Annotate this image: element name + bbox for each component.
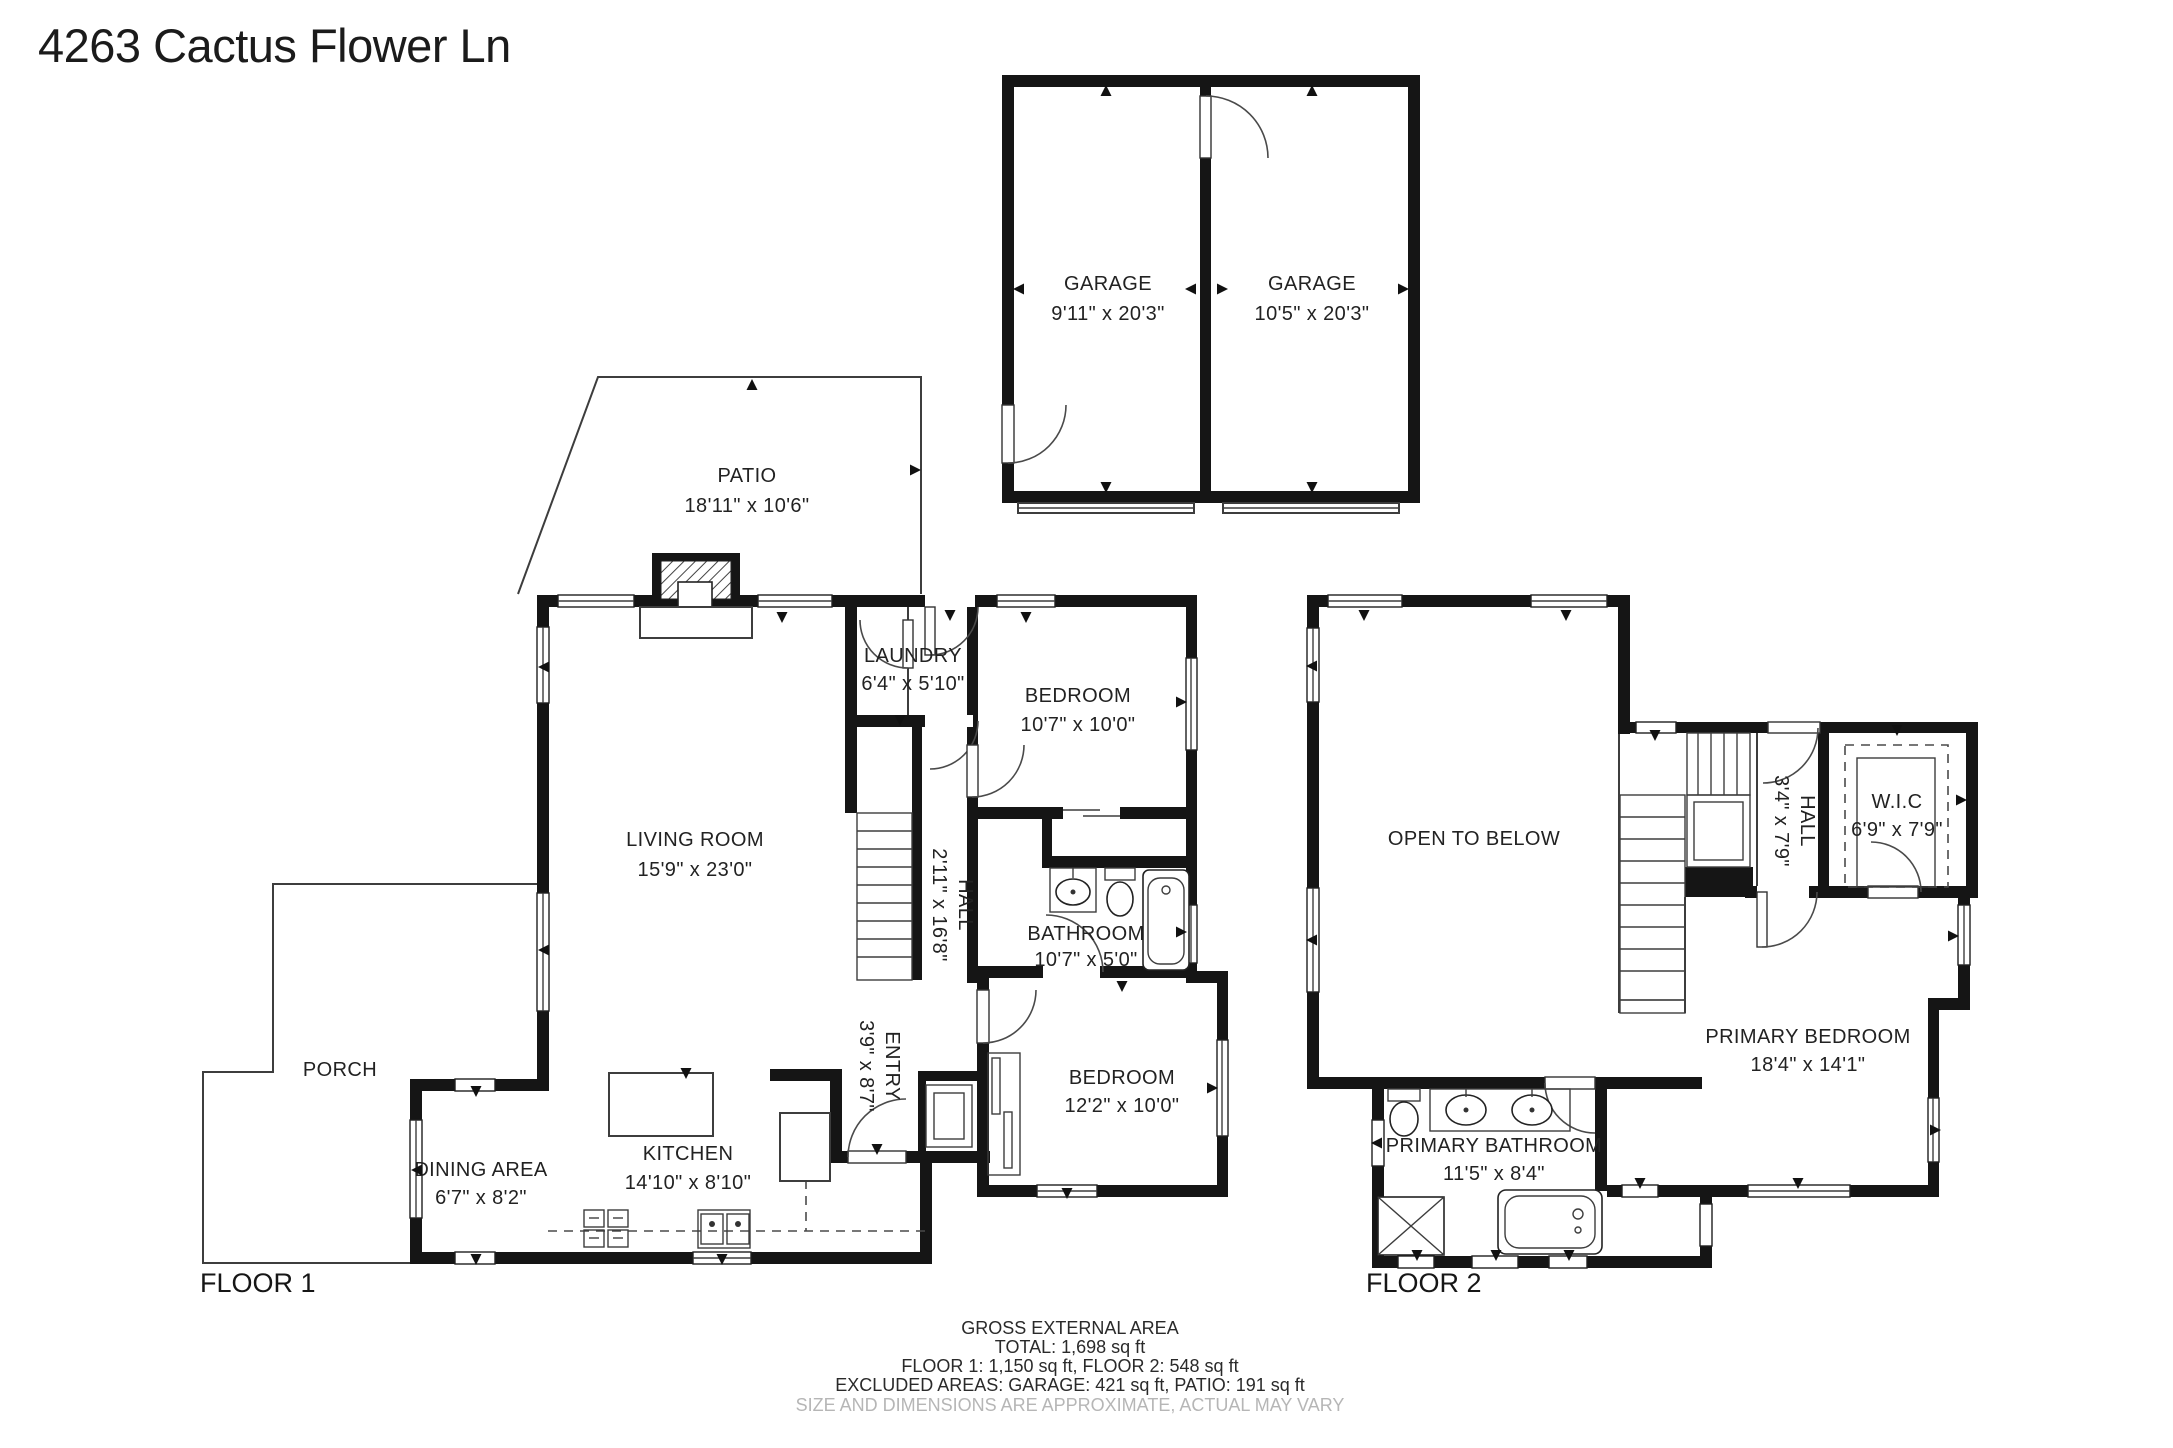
stove <box>584 1210 628 1247</box>
wall-shape <box>1618 595 1630 734</box>
kitchen-dims: 14'10" x 8'10" <box>625 1172 751 1194</box>
primary-bedroom-dims: 18'4" x 14'1" <box>1751 1054 1866 1076</box>
thin1-shape <box>727 1214 749 1244</box>
circle-shape <box>1530 1108 1535 1113</box>
open-to-below-label: OPEN TO BELOW <box>1388 828 1560 850</box>
dash-shape <box>1845 745 1948 887</box>
arc-shape <box>972 745 1024 797</box>
garage-left-dims: 9'11" x 20'3" <box>1051 303 1164 325</box>
circle-shape <box>1464 1108 1469 1113</box>
living-room-label: LIVING ROOM <box>626 829 764 851</box>
entry-label: ENTRY <box>881 1031 903 1100</box>
use-shape <box>1217 284 1228 295</box>
thin-shape <box>640 607 752 638</box>
page-title: 4263 Cactus Flower Ln <box>38 19 511 72</box>
footer-line1: GROSS EXTERNAL AREA <box>961 1318 1178 1338</box>
gap-shape <box>925 595 975 607</box>
footer-disclaimer: SIZE AND DIMENSIONS ARE APPROXIMATE, ACT… <box>796 1395 1345 1415</box>
wall-shape <box>1595 1077 1607 1191</box>
wall-shape <box>1818 722 1829 898</box>
laundry-label: LAUNDRY <box>864 645 962 667</box>
thin1-shape <box>698 1210 750 1248</box>
wall-shape <box>537 595 1197 607</box>
wall-shape <box>830 1075 842 1163</box>
leaf-shape <box>967 745 978 797</box>
arc-shape <box>1762 892 1817 947</box>
circle-shape <box>735 1221 741 1227</box>
primary-bedroom-label: PRIMARY BEDROOM <box>1705 1026 1910 1048</box>
use-shape <box>747 379 758 390</box>
use-shape <box>777 612 788 623</box>
wall-shape <box>1408 75 1420 503</box>
bathroom1-label: BATHROOM <box>1027 923 1144 945</box>
use-shape <box>1561 610 1572 621</box>
leaf-shape <box>1868 886 1918 898</box>
win-shape <box>1700 1204 1712 1246</box>
thin1-shape <box>1004 1112 1012 1168</box>
use-shape <box>1185 284 1196 295</box>
bedroom-bottom-label: BEDROOM <box>1069 1067 1175 1089</box>
garage-door-arc <box>1206 96 1268 158</box>
gap-shape <box>925 715 973 727</box>
toilet <box>1107 882 1133 916</box>
leaf-shape <box>1768 722 1820 733</box>
wall-shape <box>1966 722 1978 898</box>
footer-line3: FLOOR 1: 1,150 sq ft, FLOOR 2: 548 sq ft <box>901 1356 1238 1376</box>
thin1-shape <box>934 1093 964 1139</box>
stair-landing <box>1687 795 1750 867</box>
thin1-shape <box>1694 802 1743 860</box>
use-shape <box>1359 610 1370 621</box>
wall-shape <box>1685 867 1753 897</box>
floor2-label: FLOOR 2 <box>1366 1268 1482 1298</box>
use-shape <box>910 465 921 476</box>
garage-door-leaf <box>1200 96 1211 158</box>
wall-shape <box>920 1157 932 1264</box>
garage-side-door-leaf <box>1002 405 1014 463</box>
entry-closet <box>926 1085 972 1147</box>
wall-shape <box>1042 815 1052 860</box>
bedroom-top-label: BEDROOM <box>1025 685 1131 707</box>
wic-label: W.I.C <box>1872 791 1923 813</box>
wic-dims: 6'9" x 7'9" <box>1851 819 1943 841</box>
use-shape <box>945 610 956 621</box>
bathtub <box>1143 870 1189 970</box>
hall1-dims: 2'11" x 16'8" <box>928 848 950 961</box>
patio-label: PATIO <box>717 465 776 487</box>
circle-shape <box>1071 890 1076 895</box>
dining-dims: 6'7" x 8'2" <box>435 1187 527 1209</box>
primary-bathroom-label: PRIMARY BATHROOM <box>1386 1135 1602 1157</box>
thin1-shape <box>1620 795 1685 1000</box>
garage-block: GARAGE 9'11" x 20'3" GARAGE 10'5" x 20'3… <box>1002 75 1420 513</box>
use-shape <box>1117 981 1128 992</box>
use-shape <box>1956 795 1967 806</box>
thin1-shape <box>857 813 912 980</box>
toilet <box>1390 1102 1418 1136</box>
fix-shape <box>678 582 712 607</box>
wall-shape <box>1042 856 1190 868</box>
thin1-shape <box>1620 1000 1685 1013</box>
refrigerator <box>780 1113 830 1181</box>
entry-dims: 3'9" x 8'7" <box>855 1020 877 1112</box>
living-room-dims: 15'9" x 23'0" <box>638 859 753 881</box>
use-shape <box>1398 284 1409 295</box>
gap-shape <box>1063 807 1120 819</box>
kitchen-label: KITCHEN <box>643 1143 734 1165</box>
wall-shape <box>918 1071 926 1157</box>
hall2-label: HALL <box>1796 795 1818 847</box>
kitchen-island <box>609 1073 713 1136</box>
leaf-shape <box>977 990 989 1043</box>
garage-right-dims: 10'5" x 20'3" <box>1255 303 1370 325</box>
floor-plan-canvas: 4263 Cactus Flower Ln GARAGE 9'11" x 20'… <box>0 0 2173 1448</box>
toilet-tank <box>1388 1089 1420 1101</box>
footer-area-summary: GROSS EXTERNAL AREA TOTAL: 1,698 sq ft F… <box>796 1318 1345 1415</box>
use-shape <box>1021 612 1032 623</box>
floor1-staircase <box>857 813 912 980</box>
hall2-dims: 3'4" x 7'9" <box>1770 775 1792 867</box>
thin1-shape <box>1687 733 1750 795</box>
toilet-tank <box>1105 868 1135 880</box>
primary-bathroom-dims: 11'5" x 8'4" <box>1443 1163 1545 1185</box>
kitchen-sink <box>698 1210 750 1248</box>
garage-left-label: GARAGE <box>1064 273 1152 295</box>
wic-interior <box>1845 745 1948 887</box>
circle-shape <box>709 1221 715 1227</box>
garage-right-label: GARAGE <box>1268 273 1356 295</box>
arc-shape <box>983 990 1036 1043</box>
leaf-shape <box>1757 892 1767 947</box>
wall-shape <box>977 1185 1228 1197</box>
wall-shape <box>845 595 857 813</box>
floor2-windows <box>1307 595 1970 1268</box>
bathtub <box>1498 1190 1602 1254</box>
bathroom1-dims: 10'7" x 5'0" <box>1034 949 1137 971</box>
hall1-label: HALL <box>954 879 976 931</box>
footer-line2: TOTAL: 1,698 sq ft <box>995 1337 1145 1357</box>
laundry-dims: 6'4" x 5'10" <box>861 673 964 695</box>
thin1-shape <box>992 1058 1000 1114</box>
wall-shape <box>770 1069 842 1081</box>
use-shape <box>1650 730 1661 741</box>
fireplace <box>640 553 752 638</box>
garage-side-door-arc <box>1008 405 1066 463</box>
wall-shape <box>1307 1077 1702 1089</box>
floor-plan-page: 4263 Cactus Flower Ln GARAGE 9'11" x 20'… <box>0 0 2173 1448</box>
use-shape <box>1013 284 1024 295</box>
patio-dims: 18'11" x 10'6" <box>685 495 810 517</box>
bedroom-bottom-dims: 12'2" x 10'0" <box>1065 1095 1180 1117</box>
floor2-walls <box>1307 595 1978 1268</box>
arc-shape <box>1871 842 1921 892</box>
leaf-shape <box>1545 1077 1595 1089</box>
dining-label: DINING AREA <box>414 1159 548 1181</box>
wall-shape <box>912 723 922 980</box>
thin1-shape <box>701 1214 723 1244</box>
footer-line4: EXCLUDED AREAS: GARAGE: 421 sq ft, PATIO… <box>835 1375 1305 1395</box>
porch-label: PORCH <box>303 1059 377 1081</box>
wall-shape <box>918 1071 980 1081</box>
floor1-label: FLOOR 1 <box>200 1268 316 1298</box>
bedroom-top-dims: 10'7" x 10'0" <box>1021 714 1136 736</box>
